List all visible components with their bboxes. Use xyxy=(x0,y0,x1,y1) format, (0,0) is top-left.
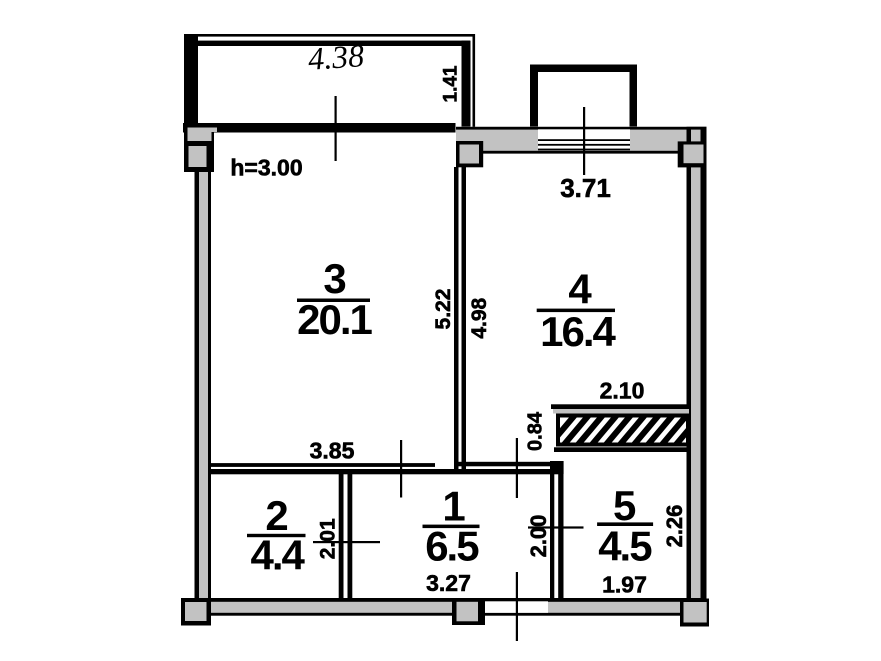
svg-text:4.38: 4.38 xyxy=(307,37,365,77)
svg-text:1.97: 1.97 xyxy=(602,572,647,598)
svg-text:6.5: 6.5 xyxy=(425,523,479,570)
svg-text:4.98: 4.98 xyxy=(468,297,491,338)
svg-text:1.41: 1.41 xyxy=(441,65,462,102)
svg-text:4: 4 xyxy=(568,266,592,313)
svg-text:5.22: 5.22 xyxy=(432,289,455,330)
svg-text:16.4: 16.4 xyxy=(540,308,616,355)
svg-text:20.1: 20.1 xyxy=(297,296,372,343)
svg-text:h=3.00: h=3.00 xyxy=(230,155,302,181)
svg-text:3: 3 xyxy=(323,255,345,302)
svg-text:2.00: 2.00 xyxy=(526,515,551,558)
svg-text:2.01: 2.01 xyxy=(316,518,339,559)
svg-text:3.71: 3.71 xyxy=(560,173,611,203)
svg-text:3.27: 3.27 xyxy=(426,570,471,596)
svg-text:4.4: 4.4 xyxy=(251,532,306,579)
svg-text:2.10: 2.10 xyxy=(600,377,645,403)
svg-text:0.84: 0.84 xyxy=(525,411,547,451)
svg-text:3.85: 3.85 xyxy=(310,438,355,464)
svg-text:4.5: 4.5 xyxy=(598,523,652,570)
svg-text:2.26: 2.26 xyxy=(662,505,687,548)
